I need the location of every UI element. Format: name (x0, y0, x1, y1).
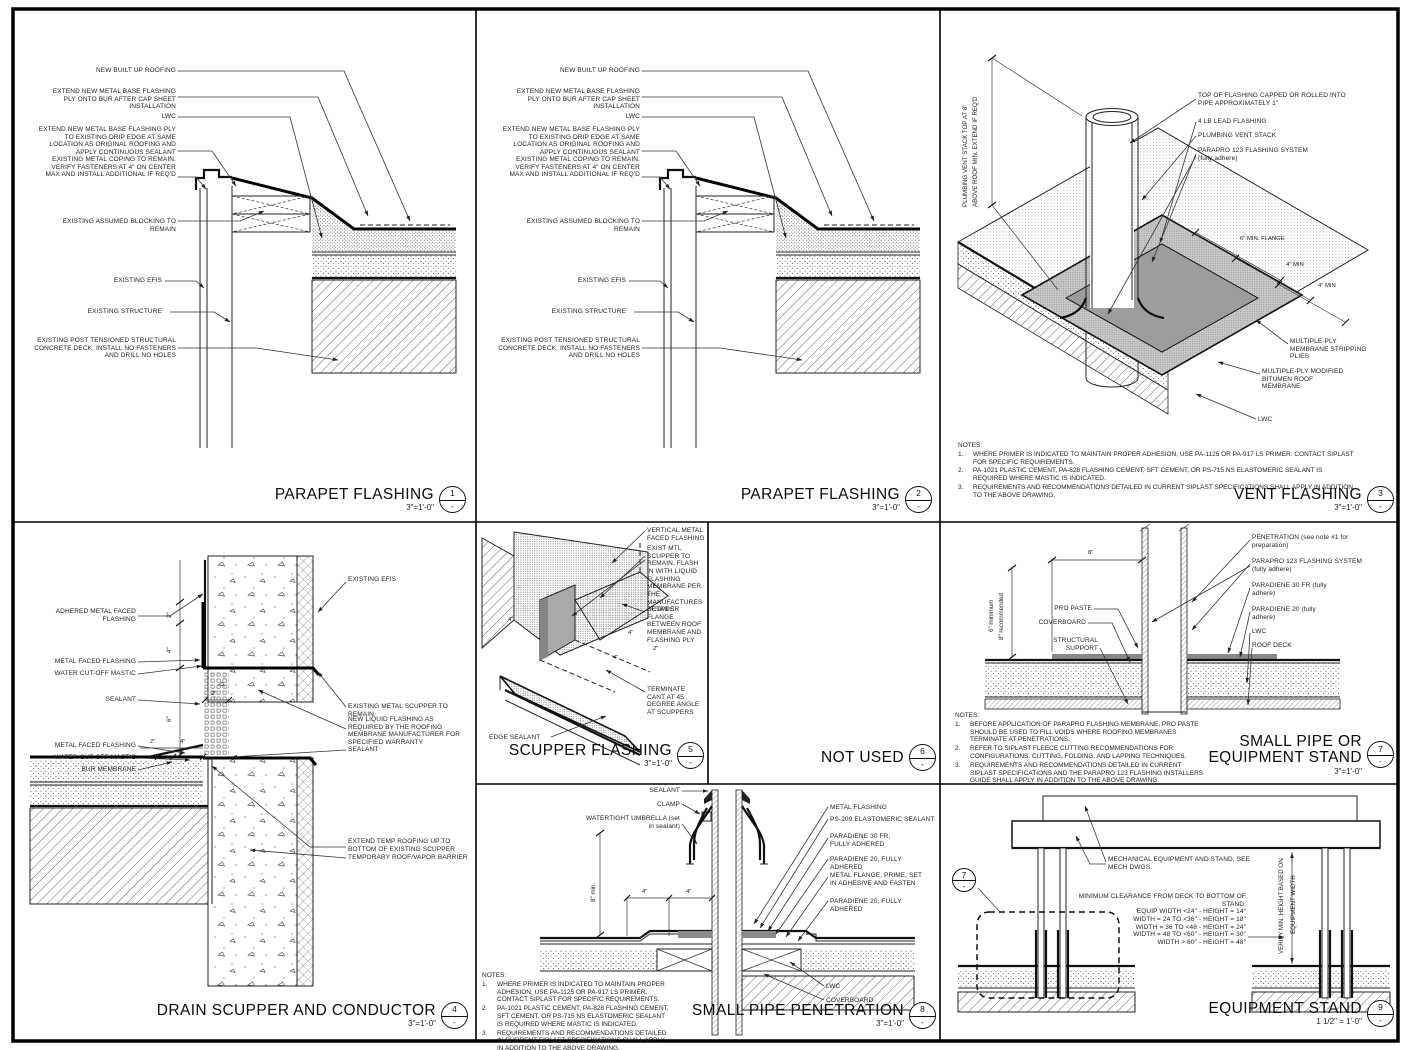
detail-title-line1: SMALL PIPE OR (1208, 734, 1362, 750)
label-paradiene-30fr: PARADIENE 30 FR (fully adhere) (1252, 582, 1342, 597)
label-structural-support: STRUCTURAL SUPPORT (1042, 637, 1098, 652)
drawing-sheet: NEW BUILT UP ROOFING EXTEND NEW METAL BA… (0, 0, 1410, 1050)
detail-1-drawing (165, 71, 456, 448)
detail-title: NOT USED (821, 750, 904, 766)
clearance-row: EQUIP WIDTH <24" - HEIGHT = 14" (1078, 908, 1246, 916)
detail-scale: 3"=1'-0" (509, 759, 672, 768)
label-lwc: LWC (1252, 628, 1292, 636)
detail-scale: 3"=1'-0" (1208, 767, 1362, 776)
label-water-cutoff-mastic-2: WATER CUT-OFF MASTIC (40, 754, 136, 762)
label-lwc: LWC (584, 113, 640, 121)
detail-bubble: 8- (909, 1002, 936, 1029)
label-stripping-plies: MULTIPLE-PLY MEMBRANE STRIPPING PLIES (1290, 338, 1368, 361)
label-bur-membrane: BUR MEMBRANE (56, 766, 136, 774)
label-pro-paste: PRO PASTE (1042, 605, 1092, 613)
dim-6in-minimum: 6" minimum (988, 600, 995, 632)
detail-2-drawing (629, 71, 920, 448)
label-modbit-membrane: MULTIPLE-PLY MODIFIED BITUMEN ROOF MEMBR… (1262, 368, 1352, 391)
dim-2in: 2" (150, 739, 155, 745)
detail-bubble: 6- (909, 744, 936, 771)
dim-8in-min: 8" min. (590, 883, 597, 902)
detail-bubble: 5- (677, 742, 704, 769)
detail-4-titleblock: DRAIN SCUPPER AND CONDUCTOR3"=1'-0" 4- (157, 1002, 468, 1029)
dim-4in: 4" (613, 655, 618, 661)
detail-title: SMALL PIPE PENETRATION (692, 1003, 904, 1019)
label-metal-flashing: METAL FLASHING (830, 804, 930, 812)
detail-title: DRAIN SCUPPER AND CONDUCTOR (157, 1003, 436, 1019)
label-adhered-flashing: ADHERED METAL FACED FLASHING (40, 608, 136, 623)
label-ps209-sealant: PS-209 ELASTOMERIC SEALANT (830, 816, 935, 824)
detail-8-titleblock: SMALL PIPE PENETRATION3"=1'-0" 8- (692, 1002, 936, 1029)
detail-scale: 3"=1'-0" (692, 1019, 904, 1028)
label-new-built-up-roofing: NEW BUILT UP ROOFING (66, 67, 176, 75)
label-equipment-width: EQUIPMENT WIDTH (1290, 875, 1297, 934)
note-item: 1.WHERE PRIMER IS INDICATED TO MAINTAIN … (482, 981, 670, 1004)
detail-title: SCUPPER FLASHING (509, 743, 672, 759)
detail-bubble: 1- (439, 486, 466, 513)
label-vertical-metal-flashing: VERTICAL METAL FACED FLASHING (647, 527, 705, 542)
detail-scale: 3"=1'-0" (741, 503, 900, 512)
label-temp-vapor-barrier: TEMPORARY ROOF/VAPOR BARRIER (348, 854, 468, 862)
label-coping: EXISTING METAL COPING TO REMAIN. VERIFY … (500, 156, 640, 179)
detail-title: EQUIPMENT STAND (1208, 1001, 1362, 1017)
label-penetration: PENETRATION (see note #1 for preparation… (1252, 534, 1382, 549)
dim-4min-a: 4" MIN (1286, 262, 1304, 268)
label-new-built-up-roofing: NEW BUILT UP ROOFING (530, 67, 640, 75)
detail-3-drawing (958, 55, 1368, 419)
detail-1-titleblock: PARAPET FLASHING3"=1'-0" 1- (275, 486, 466, 513)
detail-scale: 1 1/2" = 1'-0" (1208, 1017, 1362, 1026)
detail-bubble: 4- (441, 1002, 468, 1029)
note-item: 1.BEFORE APPLICATION OF PARAPRO FLASHING… (955, 721, 1207, 744)
clearance-row: WIDTH > 60" - HEIGHT = 48" (1078, 939, 1246, 947)
dim-8in: 8" (1088, 550, 1093, 556)
detail-bubble: 7- (1367, 741, 1394, 768)
label-vent-stack-dim-1: PLUMBING VENT STACK TOP AT 8" (962, 105, 969, 208)
label-mechanical-equipment: MECHANICAL EQUIPMENT AND STAND, SEE MECH… (1108, 856, 1260, 871)
dim-2in: 2" (166, 612, 173, 618)
dim-4in: 4" (642, 889, 647, 895)
clearance-table: MINIMUM CLEARANCE FROM DECK TO BOTTOM OF… (1078, 893, 1246, 947)
note-item: 2.PA-1021 PLASTIC CEMENT, PA-828 FLASHIN… (482, 1005, 670, 1028)
detail-6-titleblock: NOT USED 6- (821, 744, 936, 771)
notes-heading: NOTES: (482, 972, 670, 980)
detail-scale: 3"=1'-0" (275, 503, 434, 512)
label-lwc: LWC (1258, 416, 1298, 424)
clearance-title: MINIMUM CLEARANCE FROM DECK TO BOTTOM OF… (1078, 893, 1246, 908)
label-water-cutoff-mastic-1: WATER CUT-OFF MASTIC (40, 670, 136, 678)
detail-9-titleblock: EQUIPMENT STAND1 1/2" = 1'-0" 9- (1208, 1000, 1394, 1027)
label-parapro-system: PARAPRO 123 FLASHING SYSTEM (fully adher… (1198, 147, 1313, 162)
detail-scale: 3"=1'-0" (157, 1019, 436, 1028)
label-plumbing-vent-stack: PLUMBING VENT STACK (1198, 132, 1318, 140)
label-clamp: CLAMP (620, 801, 680, 809)
label-top-of-flashing: TOP OF FLASHING CAPPED OR ROLLED INTO PI… (1198, 92, 1348, 107)
detail-2-titleblock: PARAPET FLASHING3"=1'-0" 2- (741, 486, 932, 513)
label-sealant-2: SEALANT (348, 746, 408, 754)
label-blocking: EXISTING ASSUMED BLOCKING TO REMAIN (40, 218, 176, 233)
label-exist-scupper: EXIST MTL SCUPPER TO REMAIN, FLASH IN WI… (647, 545, 707, 614)
notes-heading: NOTES: (955, 712, 1207, 720)
detail-title: VENT FLASHING (1234, 487, 1362, 503)
dim-4in: 4" (166, 647, 173, 653)
detail-scale: 3"=1'-0" (1234, 503, 1362, 512)
label-blocking: EXISTING ASSUMED BLOCKING TO REMAIN (504, 218, 640, 233)
dim-8in-recommended: 8" recommended (998, 593, 1005, 640)
notes-heading: NOTES: (958, 442, 1358, 450)
label-deck: EXISTING POST TENSIONED STRUCTURAL CONCR… (494, 337, 640, 360)
detail-7-reference-bubble: 7 - (952, 868, 976, 892)
dim-2in: 2" (653, 646, 658, 652)
clearance-row: WIDTH = 48 TO <60" - HEIGHT = 30" (1078, 931, 1246, 939)
label-watertight-umbrella: WATERTIGHT UMBRELLA (set in sealant) (584, 815, 680, 830)
dim-2in: 2" (211, 691, 216, 697)
label-roof-deck: ROOF DECK (1252, 642, 1322, 650)
detail-title-line2: EQUIPMENT STAND (1208, 750, 1362, 766)
label-extend-temp-roofing: EXTEND TEMP ROOFING UP TO BOTTOM OF EXIS… (348, 838, 460, 853)
detail-title: PARAPET FLASHING (741, 487, 900, 503)
label-metal-faced-flashing-1: METAL FACED FLASHING (40, 658, 136, 666)
label-extend-ply-drip: EXTEND NEW METAL BASE FLASHING PLY TO EX… (36, 126, 176, 157)
dim-4in: 4" (508, 617, 513, 623)
dim-4in: 4" (686, 889, 691, 895)
note-item: 3.REQUIREMENTS AND RECOMMENDATIONS DETAI… (955, 762, 1207, 785)
label-sealant-1: SEALANT (76, 696, 136, 704)
label-verify-min-height: VERIFY MIN. HEIGHT BASED ON (1278, 858, 1285, 954)
label-structure: EXISTING STRUCTURE (550, 308, 626, 316)
label-new-liquid-flashing: NEW LIQUID FLASHING AS REQUIRED BY THE R… (348, 716, 466, 747)
dim-4min-b: 4" MIN (1318, 283, 1336, 289)
detail-bubble: 2- (905, 486, 932, 513)
label-lwc: LWC (826, 983, 866, 991)
note-item: 2.REFER TO SIPLAST FLEECE CUTTING RECOMM… (955, 745, 1207, 761)
detail-bubble: 3- (1367, 486, 1394, 513)
label-deck: EXISTING POST TENSIONED STRUCTURAL CONCR… (30, 337, 176, 360)
label-metal-faced-flashing-2: METAL FACED FLASHING (40, 742, 136, 750)
label-extend-ply-bur: EXTEND NEW METAL BASE FLASHING PLY ONTO … (504, 88, 640, 111)
detail-3-titleblock: VENT FLASHING3"=1'-0" 3- (1234, 486, 1394, 513)
detail-5-drawing (482, 531, 668, 765)
detail-bubble: 9- (1367, 1000, 1394, 1027)
detail-7-notes: NOTES: 1.BEFORE APPLICATION OF PARAPRO F… (955, 712, 1207, 785)
label-paradiene-20: PARADIENE 20 (fully adhere) (1252, 606, 1332, 621)
dim-4in: 4" (628, 630, 633, 636)
dim-4in: 4" (180, 739, 185, 745)
label-efis: EXISTING EFIS (100, 277, 162, 285)
note-item: 2.PA-1021 PLASTIC CEMENT, PA-828 FLASHIN… (958, 467, 1358, 483)
label-metal-flange: METAL FLANGE, PRIME, SET IN ADHESIVE AND… (830, 872, 925, 887)
label-structure: EXISTING STRUCTURE (86, 308, 162, 316)
clearance-row: WIDTH = 36 TO <48 - HEIGHT = 24" (1078, 924, 1246, 932)
dim-flange: 6" MIN. FLANGE (1240, 236, 1285, 242)
detail-5-titleblock: SCUPPER FLASHING3"=1'-0" 5- (509, 742, 704, 769)
label-sealant: SEALANT (620, 787, 680, 795)
label-extend-ply-bur: EXTEND NEW METAL BASE FLASHING PLY ONTO … (40, 88, 176, 111)
dim-6in: 6" (166, 716, 173, 722)
label-extend-ply-drip: EXTEND NEW METAL BASE FLASHING PLY TO EX… (500, 126, 640, 157)
detail-8-notes: NOTES: 1.WHERE PRIMER IS INDICATED TO MA… (482, 972, 670, 1050)
label-lwc: LWC (120, 113, 176, 121)
label-paradiene-30fr: PARADIENE 30 FR, FULLY ADHERED (830, 833, 912, 848)
label-lead-flashing: 4 LB LEAD FLASHING (1198, 118, 1318, 126)
clearance-row: WIDTH = 24 TO <36" - HEIGHT = 18" (1078, 916, 1246, 924)
detail-title: PARAPET FLASHING (275, 487, 434, 503)
detail-7-titleblock: SMALL PIPE OREQUIPMENT STAND3"=1'-0" 7- (1208, 734, 1394, 776)
label-vent-stack-dim-2: ABOVE ROOF MIN. EXTEND IF REQ'D (972, 96, 979, 207)
label-efis: EXISTING EFIS (564, 277, 626, 285)
note-item: 3.REQUIREMENTS AND RECOMMENDATIONS DETAI… (482, 1030, 670, 1050)
label-existing-efis: EXISTING EFIS (348, 576, 458, 584)
label-parapro-system: PARAPRO 123 FLASHING SYSTEM (fully adher… (1252, 558, 1367, 573)
label-coping: EXISTING METAL COPING TO REMAIN. VERIFY … (36, 156, 176, 179)
label-paradiene-20-b: PARADIENE 20, FULLY ADHERED (830, 898, 935, 913)
label-scupper-flange: SCUPPER FLANGE BETWEEN ROOF MEMBRANE AND… (647, 606, 705, 644)
note-item: 1.WHERE PRIMER IS INDICATED TO MAINTAIN … (958, 451, 1358, 467)
label-terminate-cant: TERMINATE CANT AT 45 DEGREE ANGLE AT SCU… (647, 686, 705, 717)
label-coverboard: COVERBOARD (1032, 619, 1086, 627)
label-edge-sealant: EDGE SEALANT (489, 734, 551, 742)
label-paradiene-20-a: PARADIENE 20, FULLY ADHERED (830, 856, 935, 871)
